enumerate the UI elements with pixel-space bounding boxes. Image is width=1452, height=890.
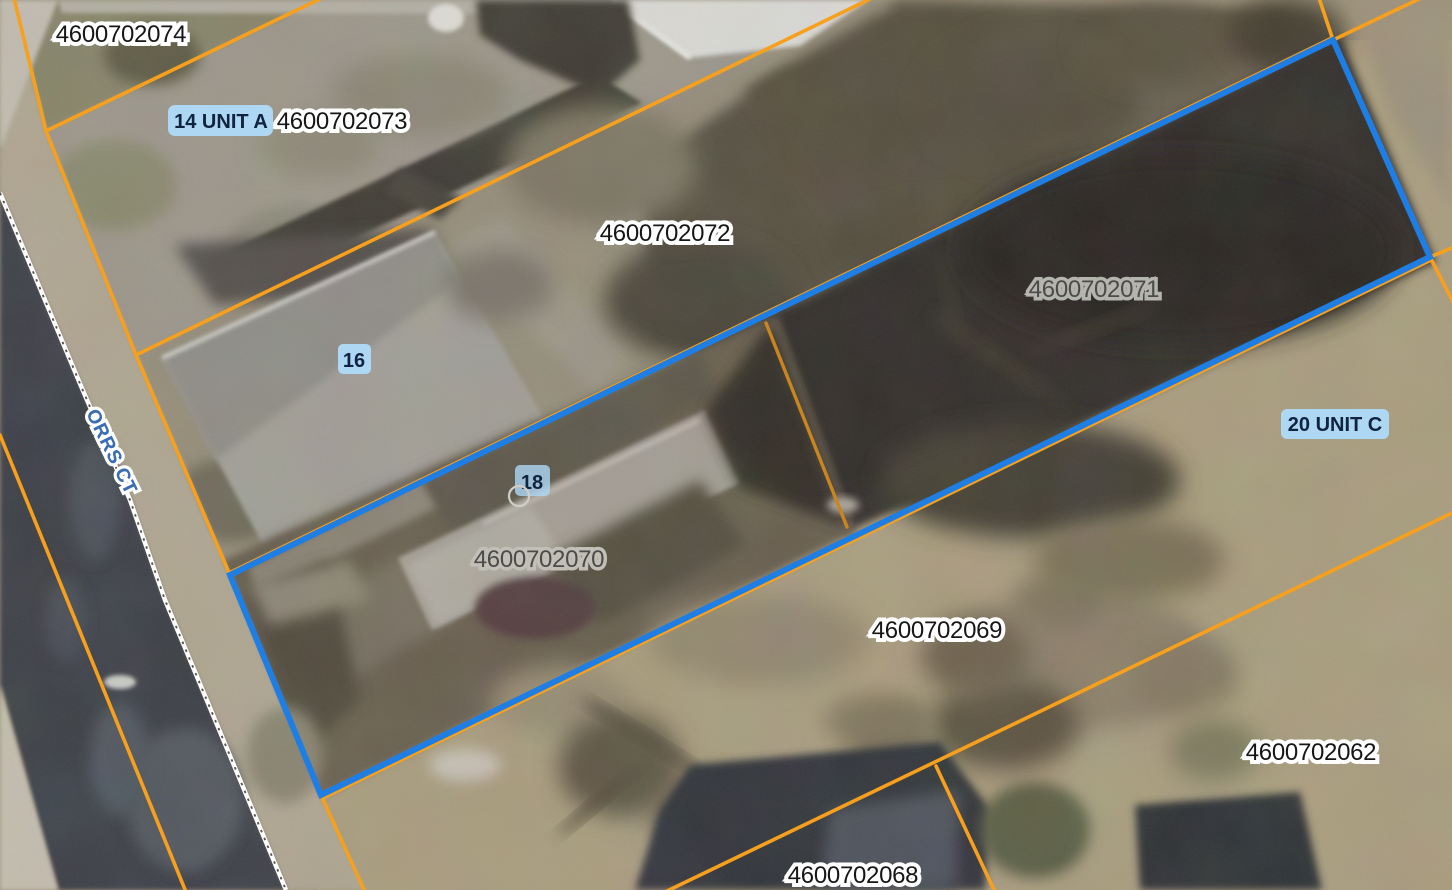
svg-text:20 UNIT C: 20 UNIT C: [1288, 414, 1382, 436]
svg-text:4600702068: 4600702068: [788, 862, 918, 889]
svg-text:4600702071: 4600702071: [1029, 276, 1159, 303]
svg-text:4600702074: 4600702074: [56, 21, 186, 48]
svg-text:16: 16: [343, 350, 365, 372]
svg-text:14 UNIT A: 14 UNIT A: [174, 111, 268, 133]
svg-text:4600702070: 4600702070: [474, 546, 604, 573]
svg-text:4600702072: 4600702072: [600, 220, 730, 247]
svg-text:4600702073: 4600702073: [277, 108, 407, 135]
svg-text:18: 18: [521, 472, 543, 494]
svg-text:4600702062: 4600702062: [1246, 739, 1376, 766]
svg-text:4600702069: 4600702069: [872, 617, 1002, 644]
